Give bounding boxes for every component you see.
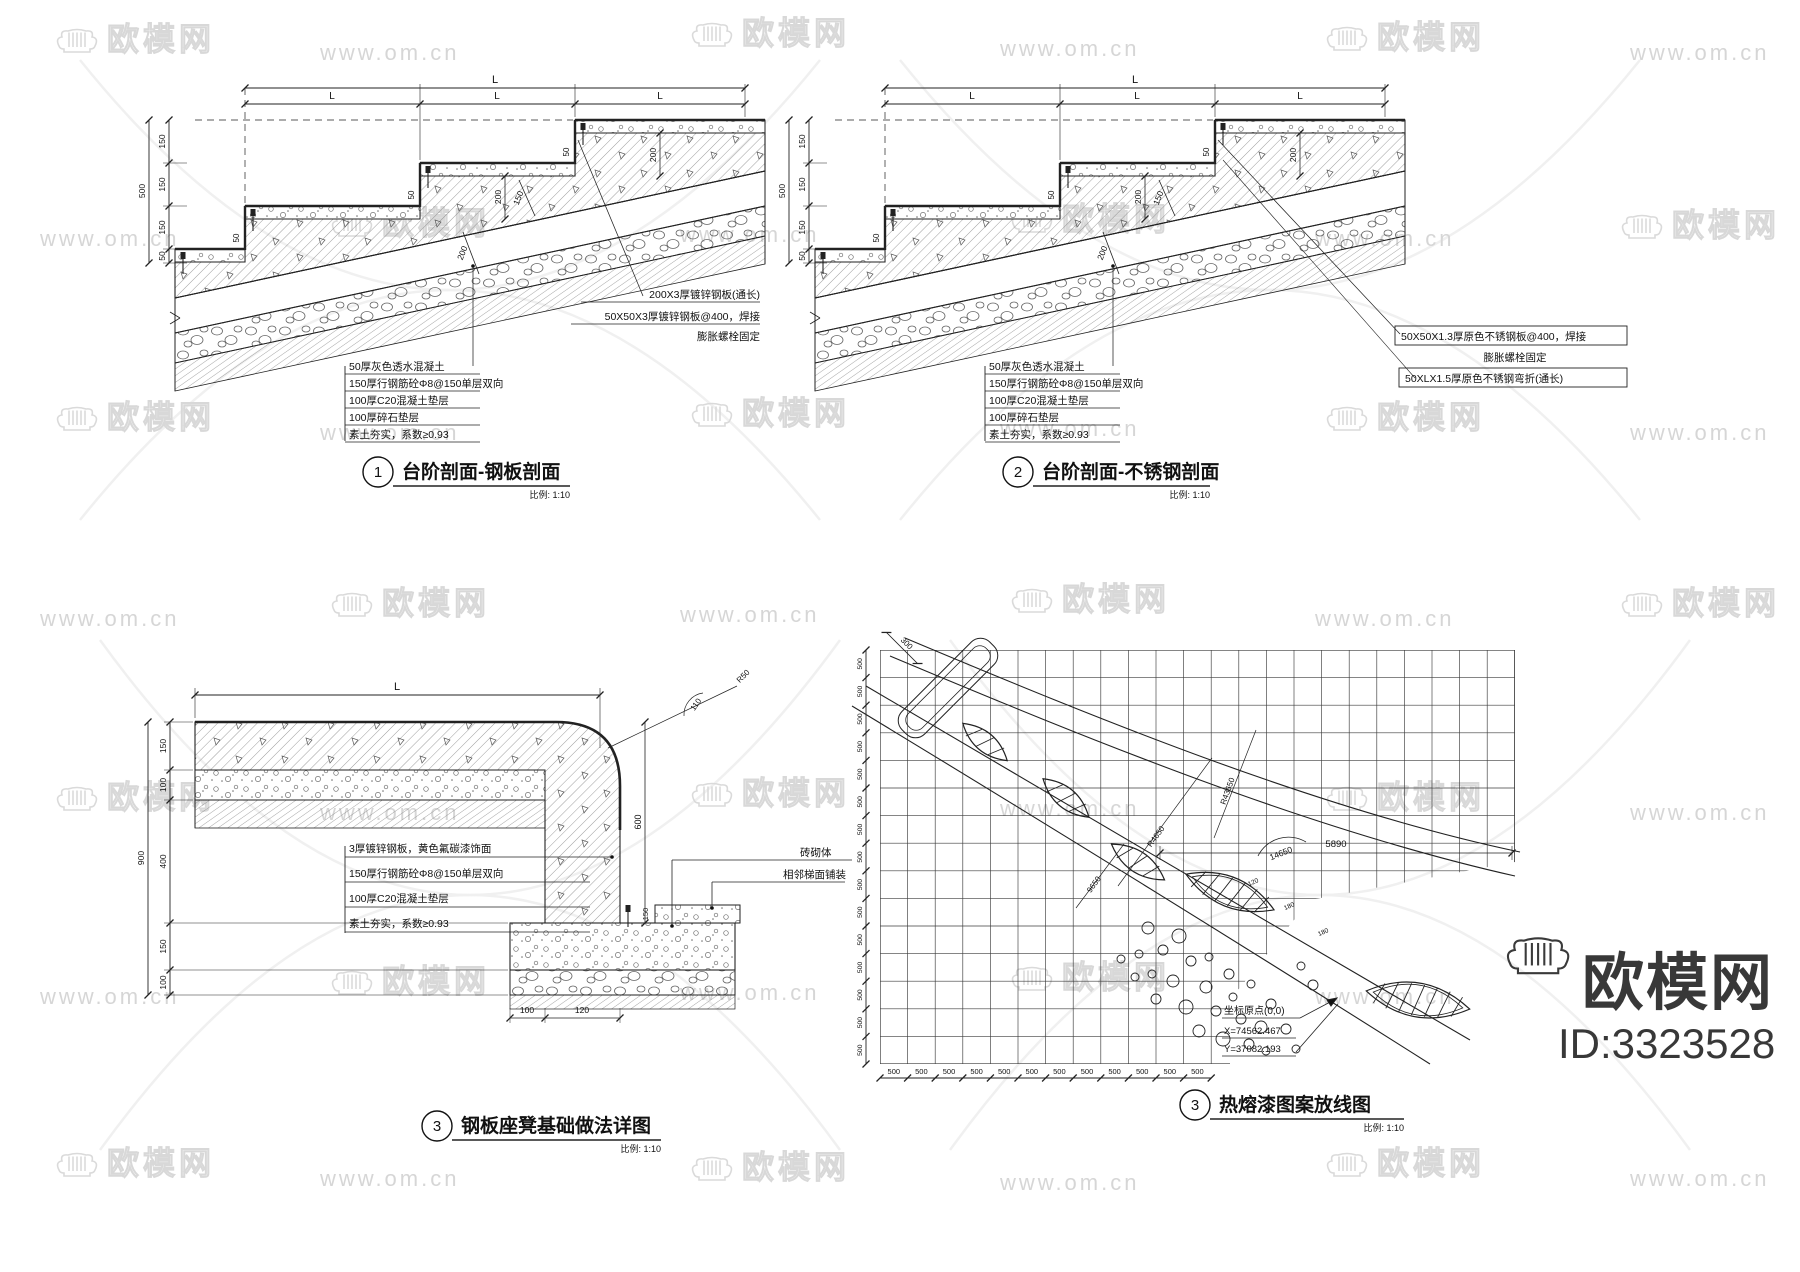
dim-label: 500 [137, 184, 147, 198]
brand-logo-text: 欧模网 [1582, 949, 1774, 1018]
dim-label: 120 [575, 1005, 589, 1015]
note-line: 素土夯实，系数≥0.93 [349, 917, 449, 930]
note-line: 50厚灰色透水混凝土 [349, 360, 445, 373]
sofa-icon [1623, 594, 1662, 617]
dim-label: 500 [998, 1067, 1011, 1076]
dim-label: 50 [797, 251, 807, 261]
brand-watermark-text: 欧模网 [1672, 207, 1780, 243]
dim-label: L [657, 91, 663, 102]
dim-label: 500 [915, 1067, 928, 1076]
sofa-icon [58, 408, 97, 431]
dim-label: 150 [797, 134, 807, 148]
dim-label: 9650 [1085, 874, 1103, 894]
dim-label: L [329, 91, 335, 102]
brand-watermark-text: 欧模网 [742, 775, 850, 811]
detail-title: 台阶剖面-不锈钢剖面 [1042, 460, 1219, 483]
leaf-motif [1180, 860, 1279, 923]
brand-watermark-text: 欧模网 [1062, 959, 1170, 995]
scale-label: 比例: 1:10 [1363, 1122, 1404, 1133]
note-line: 100厚C20混凝土垫层 [349, 892, 449, 905]
brand-watermark-text: 欧模网 [1672, 585, 1780, 621]
dim-label: 200 [648, 148, 658, 162]
brand-watermark: 欧模网 [58, 21, 215, 57]
dim-label: 180 [1317, 927, 1330, 938]
sheet: 欧模网欧模网欧模网欧模网欧模网欧模网欧模网欧模网欧模网欧模网欧模网欧模网欧模网欧… [0, 0, 1800, 1272]
callout-line: 膨胀螺栓固定 [697, 330, 760, 343]
scale-label: 比例: 1:10 [1169, 489, 1210, 500]
dim-label: 500 [857, 1017, 864, 1029]
dim-label: 150 [158, 739, 168, 753]
dim-label: L [394, 681, 400, 693]
bench-foundation-drawing: L150150100400150100900600110R50砖砌体相邻梯面铺装… [136, 667, 852, 1154]
brand-watermark: 欧模网 [1623, 207, 1780, 243]
brand-watermark-text: 欧模网 [1377, 1145, 1485, 1181]
dim-label: 100 [158, 778, 168, 792]
dim-label: L [1297, 91, 1303, 102]
cad-sheet-svg: 欧模网欧模网欧模网欧模网欧模网欧模网欧模网欧模网欧模网欧模网欧模网欧模网欧模网欧… [0, 0, 1800, 1272]
dim-label: 200 [1133, 190, 1143, 204]
dim-label: 500 [1053, 1067, 1066, 1076]
brand-watermark: 欧模网 [1013, 581, 1170, 617]
dim-label: L [492, 74, 498, 86]
callout-line: 50X50X3厚镀锌钢板@400，焊接 [605, 310, 761, 323]
sofa-icon [693, 404, 732, 427]
brand-watermark-text: 欧模网 [107, 21, 215, 57]
sofa-icon [693, 1158, 732, 1181]
note-line: 100厚C20混凝土垫层 [349, 394, 449, 407]
dim-label: 500 [1164, 1067, 1177, 1076]
brand-watermark-text: 欧模网 [742, 15, 850, 51]
url-watermark-text: www.om.cn [319, 40, 459, 65]
note-line: 150厚行钢筋砼Φ8@150单层双向 [989, 377, 1143, 390]
brand-watermark: 欧模网 [333, 963, 490, 999]
dim-label: 150 [158, 939, 168, 953]
brand-watermark: 欧模网 [693, 775, 850, 811]
dim-label: R50 [735, 667, 752, 684]
detail-number: 3 [433, 1118, 441, 1135]
detail-number: 2 [1014, 464, 1022, 481]
dim-label: 500 [888, 1067, 901, 1076]
callout-line: 膨胀螺栓固定 [1484, 351, 1547, 364]
brand-watermark: 欧模网 [693, 395, 850, 431]
brand-watermark-text: 欧模网 [742, 395, 850, 431]
sofa-icon [1328, 28, 1367, 51]
brand-watermark-text: 欧模网 [382, 963, 490, 999]
brand-watermark: 欧模网 [1013, 959, 1170, 995]
sofa-icon [1013, 590, 1052, 613]
sofa-icon [1328, 1154, 1367, 1177]
brand-watermark: 欧模网 [693, 1149, 850, 1185]
dim-label: 100 [520, 1005, 534, 1015]
brand-watermark-text: 欧模网 [382, 585, 490, 621]
dim-label: 150 [797, 220, 807, 234]
dim-label: 150 [157, 177, 167, 191]
url-watermark-text: www.om.cn [1314, 606, 1454, 631]
brand-watermark-text: 欧模网 [1062, 581, 1170, 617]
note-line: 150厚行钢筋砼Φ8@150单层双向 [349, 867, 503, 880]
note-line: 150厚行钢筋砼Φ8@150单层双向 [349, 377, 503, 390]
url-watermark-text: www.om.cn [1629, 1166, 1769, 1191]
sofa-icon [1328, 408, 1367, 431]
dim-label: 200 [493, 190, 503, 204]
dim-label: 50 [232, 233, 241, 242]
callout-line: 50XLX1.5厚原色不锈钢弯折(通长) [1405, 372, 1563, 385]
dim-label: 500 [857, 1044, 864, 1056]
dim-label: 50 [872, 233, 881, 242]
callout-line: 50X50X1.3厚原色不锈钢板@400，焊接 [1401, 330, 1587, 343]
dim-label: 100 [158, 975, 168, 989]
brand-logo-id: ID:3323528 [1558, 1020, 1775, 1067]
brand-watermark: 欧模网 [58, 1145, 215, 1181]
url-watermark-text: www.om.cn [1629, 800, 1769, 825]
detail-number: 1 [374, 464, 382, 481]
callout-line: 砖砌体 [800, 846, 832, 859]
dim-label: 500 [857, 906, 864, 918]
sofa-icon [58, 788, 97, 811]
brand-watermark: 欧模网 [58, 399, 215, 435]
url-watermark-text: www.om.cn [319, 1166, 459, 1191]
note-line: 100厚碎石垫层 [989, 411, 1059, 424]
stair2-drawing: LLLL1501501505050020020050505015020050厚灰… [777, 74, 1627, 500]
note-line: 100厚C20混凝土垫层 [989, 394, 1089, 407]
sofa-icon [333, 972, 372, 995]
dim-label: 150 [797, 177, 807, 191]
brand-watermark: 欧模网 [1623, 585, 1780, 621]
dim-label: 300 [899, 635, 915, 651]
brand-watermark-text: 欧模网 [1377, 19, 1485, 55]
callout-line: 相邻梯面铺装 [783, 868, 846, 881]
origin-label: 坐标原点(0,0) [1224, 1005, 1285, 1017]
dim-label: 150 [641, 908, 650, 921]
brand-watermark-text: 欧模网 [1377, 399, 1485, 435]
brand-watermark: 欧模网 [693, 15, 850, 51]
scale-label: 比例: 1:10 [620, 1143, 661, 1154]
dim-label: 200 [455, 244, 470, 261]
url-watermark-text: www.om.cn [999, 36, 1139, 61]
dim-label: 50 [407, 190, 416, 199]
note-line: 素土夯实，系数≥0.93 [349, 428, 449, 441]
dim-label: 500 [857, 741, 864, 753]
dim-label: L [1132, 74, 1138, 86]
dim-label: 500 [857, 851, 864, 863]
brand-watermark: 欧模网 [1328, 399, 1485, 435]
url-watermark-text: www.om.cn [999, 1170, 1139, 1195]
detail-title: 台阶剖面-钢板剖面 [402, 460, 560, 483]
dim-label: 500 [857, 686, 864, 698]
dim-label: L [969, 91, 975, 102]
brand-watermark: 欧模网 [1328, 779, 1485, 815]
brand-watermark: 欧模网 [1328, 19, 1485, 55]
dim-label: 500 [857, 713, 864, 725]
url-watermark-text: www.om.cn [1629, 420, 1769, 445]
detail-number: 3 [1191, 1097, 1199, 1114]
dim-label: 5890 [1325, 839, 1346, 850]
dim-label: L [1134, 91, 1140, 102]
note-line: 100厚碎石垫层 [349, 411, 419, 424]
brand-watermark-text: 欧模网 [107, 399, 215, 435]
brand-watermark-text: 欧模网 [107, 1145, 215, 1181]
dim-label: 500 [857, 934, 864, 946]
dim-label: 50 [1047, 190, 1056, 199]
dim-label: 500 [1108, 1067, 1121, 1076]
dim-label: 500 [857, 989, 864, 1001]
brand-watermark-text: 欧模网 [742, 1149, 850, 1185]
detail-title: 钢板座凳基础做法详图 [461, 1114, 651, 1137]
dim-label: 50 [157, 251, 167, 261]
dim-label: 500 [943, 1067, 956, 1076]
site-logo: 欧模网ID:3323528 [1508, 938, 1775, 1067]
dim-label: L [494, 91, 500, 102]
dim-label: 50 [562, 147, 571, 156]
sofa-icon [333, 594, 372, 617]
origin-x: X=74562.467 [1224, 1026, 1281, 1037]
brand-watermark-text: 欧模网 [1377, 779, 1485, 815]
dim-label: 500 [1191, 1067, 1204, 1076]
note-line: 素土夯实，系数≥0.93 [989, 428, 1089, 441]
dim-label: 500 [857, 962, 864, 974]
dim-label: 500 [857, 879, 864, 891]
detail-title: 热熔漆图案放线图 [1219, 1093, 1371, 1116]
scale-label: 比例: 1:10 [529, 489, 570, 500]
dim-label: 500 [1026, 1067, 1039, 1076]
dim-label: 50 [1202, 147, 1211, 156]
url-watermark-text: www.om.cn [39, 606, 179, 631]
dim-label: 150 [157, 134, 167, 148]
url-watermark-text: www.om.cn [679, 602, 819, 627]
note-line: 50厚灰色透水混凝土 [989, 360, 1085, 373]
dim-label: 500 [857, 658, 864, 670]
dim-label: 500 [857, 824, 864, 836]
dim-label: 500 [970, 1067, 983, 1076]
dim-label: 400 [158, 854, 168, 868]
brand-watermark: 欧模网 [58, 779, 215, 815]
sofa-icon [693, 784, 732, 807]
dim-label: 500 [857, 768, 864, 780]
origin-y: Y=37082.193 [1224, 1044, 1281, 1055]
dim-label: 500 [857, 796, 864, 808]
brand-watermark: 欧模网 [333, 585, 490, 621]
dim-label: 200 [1288, 148, 1298, 162]
dim-label: 500 [1081, 1067, 1094, 1076]
watermark-layer: 欧模网欧模网欧模网欧模网欧模网欧模网欧模网欧模网欧模网欧模网欧模网欧模网欧模网欧… [39, 15, 1780, 1195]
callout-line: 200X3厚镀锌钢板(通长) [649, 288, 760, 301]
dim-label: 600 [633, 814, 643, 829]
dim-label: 900 [136, 851, 146, 865]
dim-label: 500 [1136, 1067, 1149, 1076]
sofa-icon [58, 1154, 97, 1177]
sofa-icon [1508, 938, 1568, 973]
note-line: 3厚镀锌钢板，黄色氟碳漆饰面 [349, 842, 491, 855]
sofa-icon [693, 24, 732, 47]
url-watermark-text: www.om.cn [1629, 40, 1769, 65]
dim-label: 150 [157, 220, 167, 234]
dim-label: 500 [777, 184, 787, 198]
dim-label: R43650 [1219, 776, 1237, 806]
brand-watermark: 欧模网 [1328, 1145, 1485, 1181]
sofa-icon [1623, 216, 1662, 239]
sofa-icon [58, 30, 97, 53]
